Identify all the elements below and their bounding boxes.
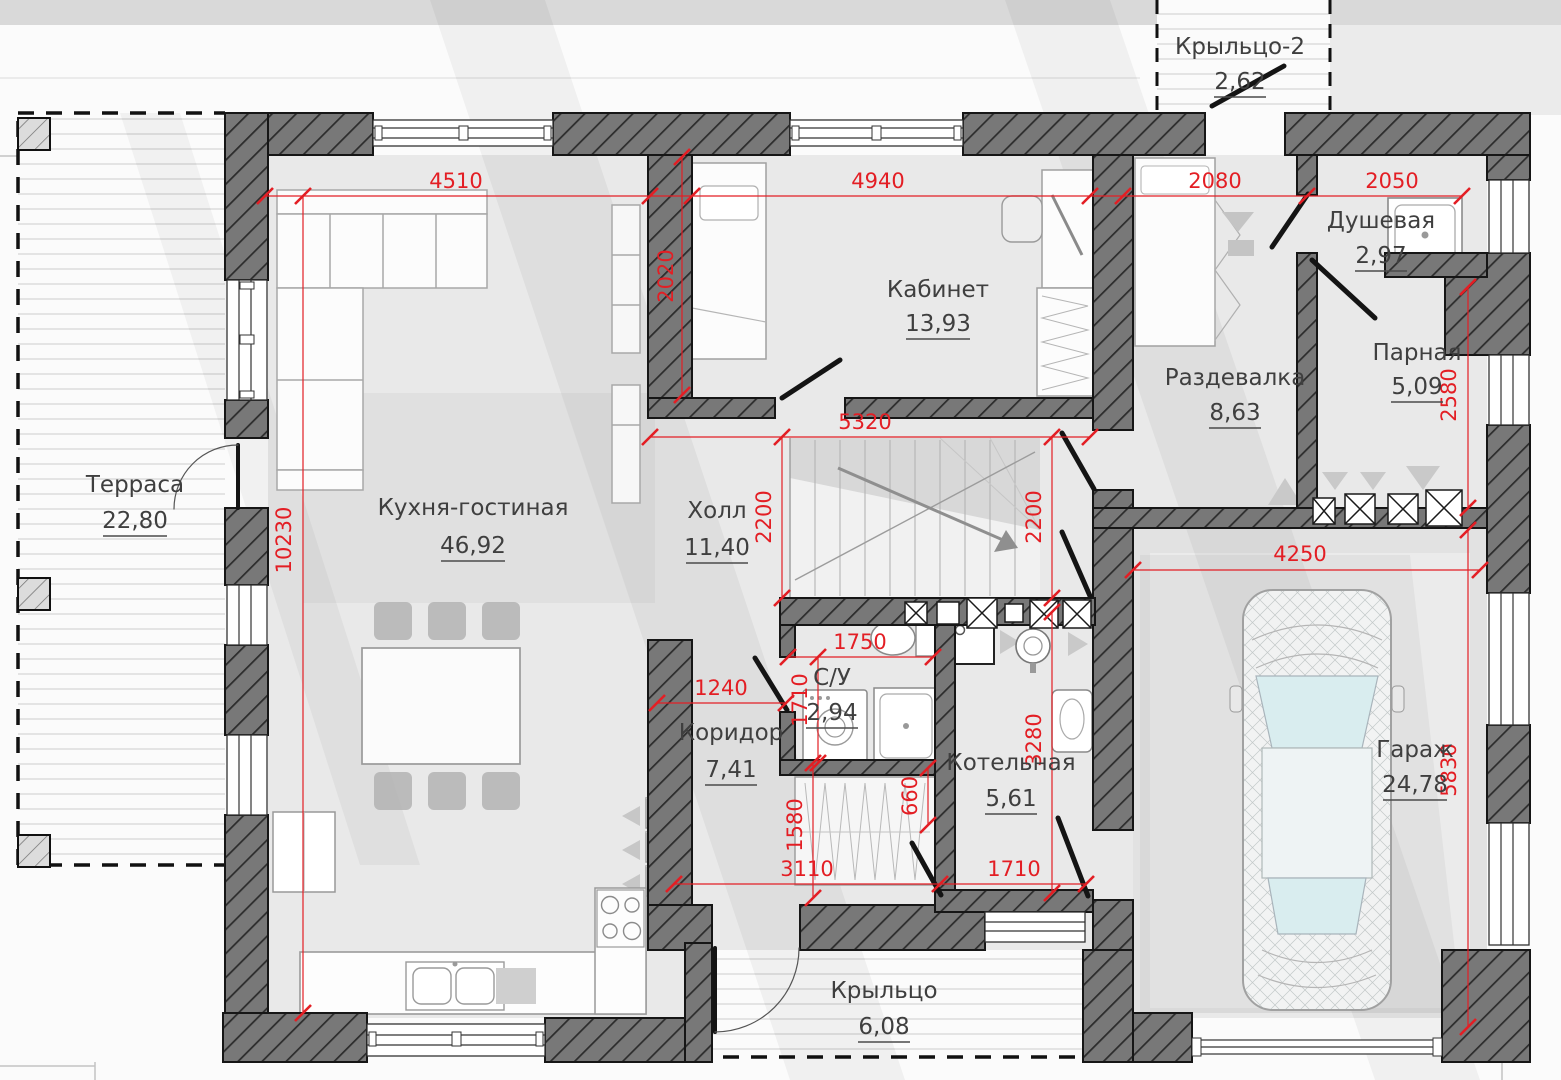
room-porch2-area: 2,62 [1214,69,1265,95]
room-wc-area: 2,94 [806,700,857,726]
dim-closet-depth: 660 [898,776,922,816]
dim-dressing-width: 2080 [1188,169,1241,193]
room-dressing-area: 8,63 [1209,400,1260,426]
window-left-low [227,735,267,815]
room-shower-area: 2,97 [1355,243,1406,269]
window-top-kitchen [373,120,553,146]
room-boiler-name: Котельная [946,750,1075,776]
room-wc-name: С/У [813,665,851,691]
window-left-living [227,280,267,400]
dim-corridor-depth: 1580 [783,798,807,851]
dim-kitchen-width: 4510 [429,169,482,193]
dim-wc-width: 1750 [833,630,886,654]
dim-stair-right: 2200 [1022,490,1046,543]
room-hall-name: Холл [687,498,746,524]
dim-garage-width: 4250 [1273,542,1326,566]
window-right-garage-1 [1489,593,1529,725]
room-shower-name: Душевая [1327,208,1435,234]
dim-cabinet-depth: 2020 [654,249,678,302]
room-porch2-name: Крыльцо-2 [1175,34,1305,60]
room-corridor-area: 7,41 [705,757,756,783]
room-sauna-name: Парная [1373,340,1462,366]
dim-stair-left: 2200 [752,490,776,543]
room-corridor-name: Коридор [679,720,784,746]
floor-plan-drawing: 4510 4940 2080 2050 5320 4250 1750 1240 … [0,0,1561,1080]
window-bottom-kitchen [367,1024,545,1056]
room-kitchen-name: Кухня-гостиная [378,495,569,521]
window-top-cabinet [790,120,963,146]
room-porch-area: 6,08 [858,1014,909,1040]
dim-porch-width-1: 3110 [780,857,833,881]
window-left-mid [227,585,267,645]
room-garage-area: 24,78 [1382,772,1448,798]
room-hall-area: 11,40 [684,535,750,561]
floor-plan-page: 4510 4940 2080 2050 5320 4250 1750 1240 … [0,0,1561,1080]
room-porch-name: Крыльцо [830,978,937,1004]
room-terrace-area: 22,80 [102,508,168,534]
room-dressing-name: Раздевалка [1165,365,1306,391]
dim-hall-width: 5320 [838,410,891,434]
room-sauna-area: 5,09 [1391,374,1442,400]
room-boiler-area: 5,61 [985,786,1036,812]
window-right-sauna [1489,355,1529,425]
window-right-shower [1489,180,1529,253]
dim-corridor-width: 1240 [694,676,747,700]
room-cabinet-area: 13,93 [905,311,971,337]
dim-cabinet-width: 4940 [851,169,904,193]
car [1230,590,1404,1010]
window-porch [985,912,1085,942]
garage-gate [1192,1038,1442,1056]
dim-shower-width: 2050 [1365,169,1418,193]
dim-porch-width-2: 1710 [987,857,1040,881]
dining-set [362,602,520,810]
window-right-garage-2 [1489,823,1529,945]
room-kitchen-area: 46,92 [440,533,506,559]
room-cabinet-name: Кабинет [887,277,989,303]
dim-house-depth: 10230 [272,507,296,574]
room-garage-name: Гараж [1376,737,1454,763]
room-terrace-name: Терраса [85,472,184,498]
